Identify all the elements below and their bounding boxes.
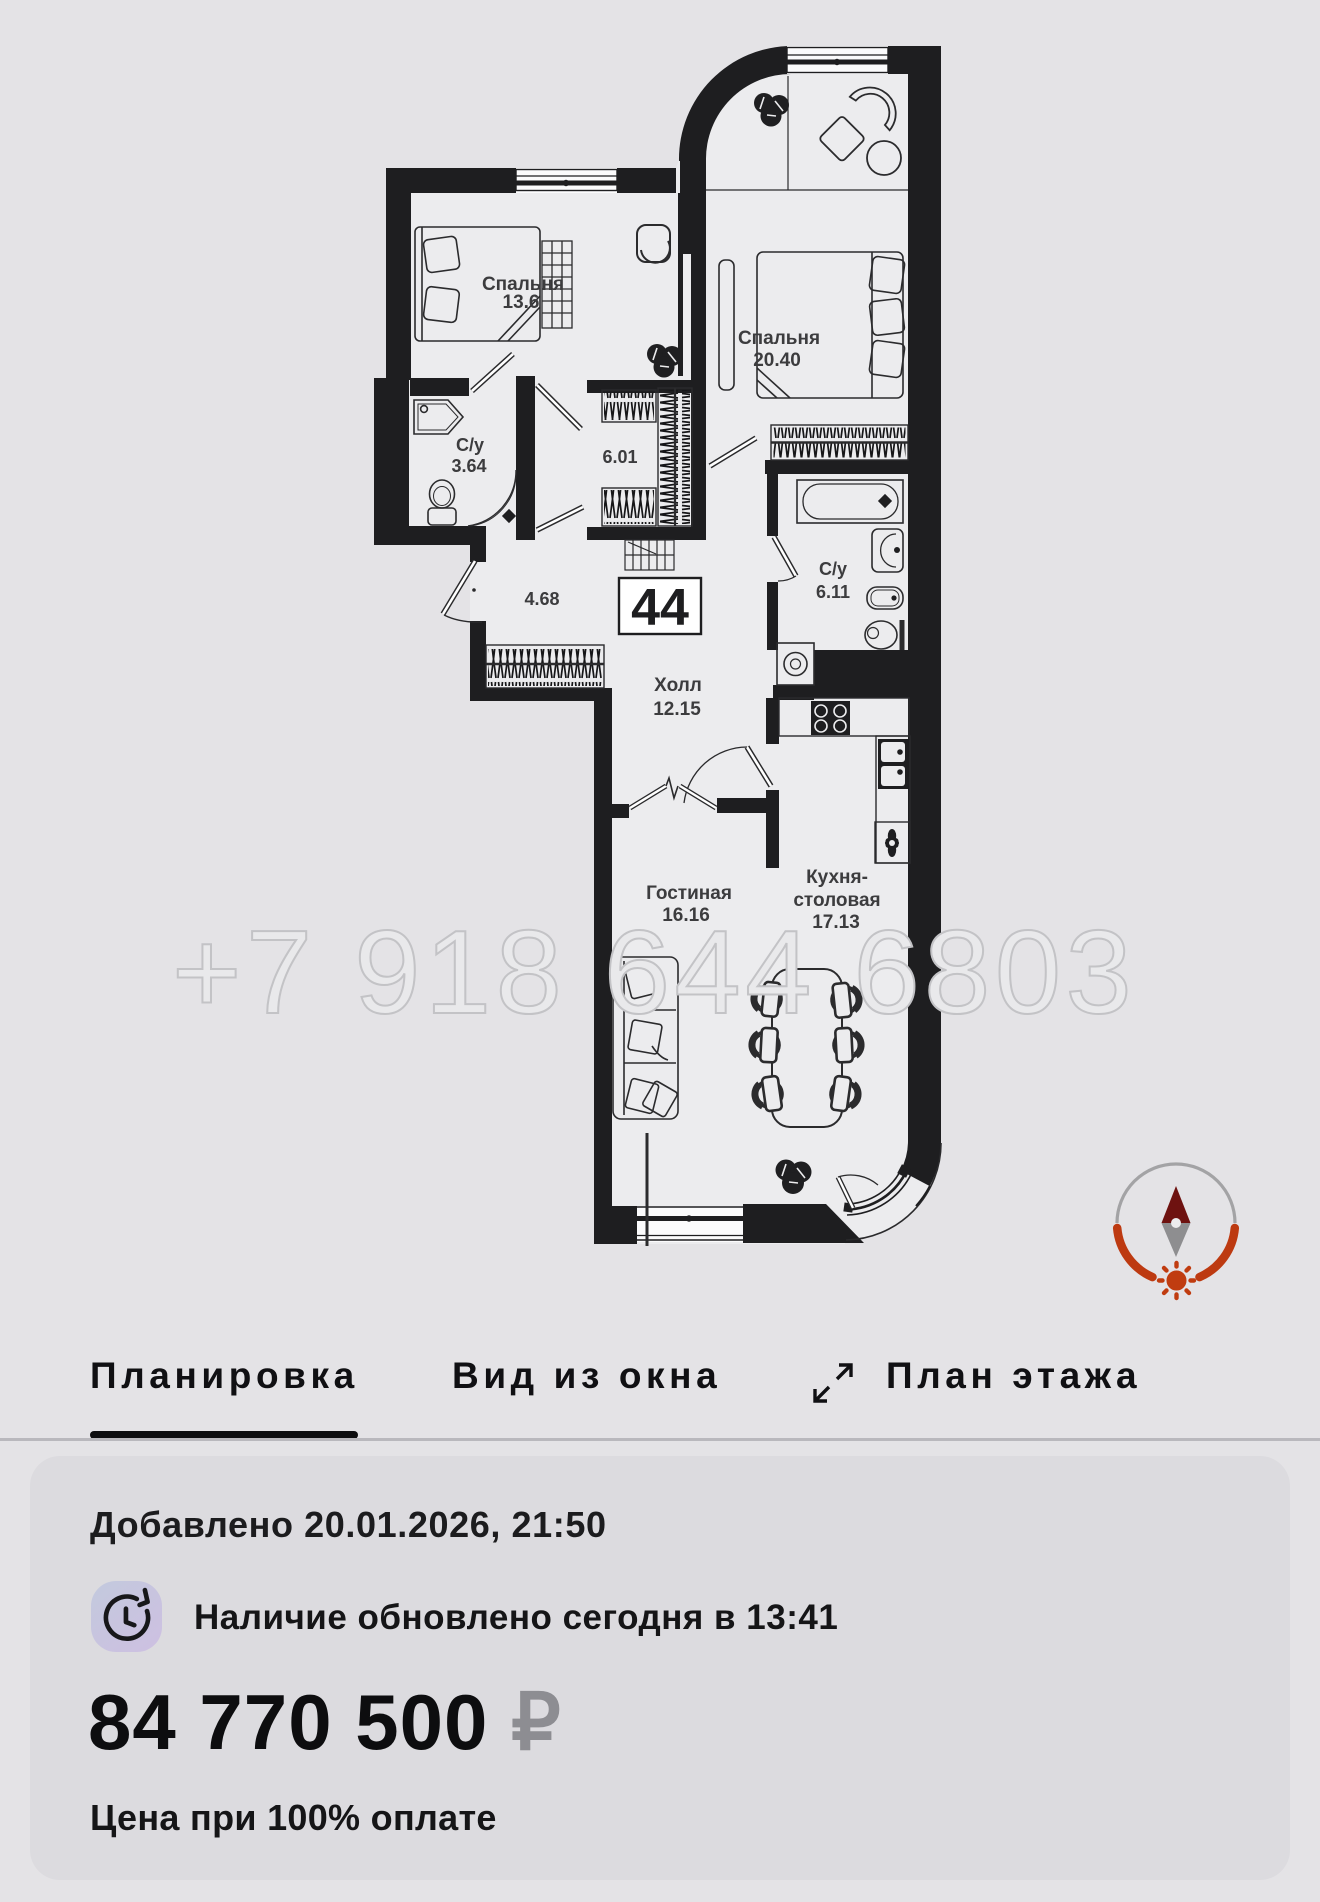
svg-text:12.15: 12.15 <box>653 699 701 720</box>
svg-text:6.01: 6.01 <box>602 447 637 467</box>
svg-text:20.40: 20.40 <box>753 350 801 371</box>
svg-text:4.68: 4.68 <box>524 589 559 609</box>
svg-text:Кухня-: Кухня- <box>806 867 868 888</box>
svg-text:С/у: С/у <box>456 435 484 455</box>
svg-text:Холл: Холл <box>654 675 702 696</box>
svg-text:13.6: 13.6 <box>503 292 540 313</box>
svg-text:+7 918 644 6803: +7 918 644 6803 <box>172 906 1136 1039</box>
svg-text:6.11: 6.11 <box>816 582 850 602</box>
svg-text:С/у: С/у <box>819 559 847 579</box>
svg-text:44: 44 <box>631 579 689 637</box>
svg-text:Спальня: Спальня <box>738 328 820 349</box>
svg-text:Гостиная: Гостиная <box>646 883 732 904</box>
svg-text:3.64: 3.64 <box>451 456 486 476</box>
